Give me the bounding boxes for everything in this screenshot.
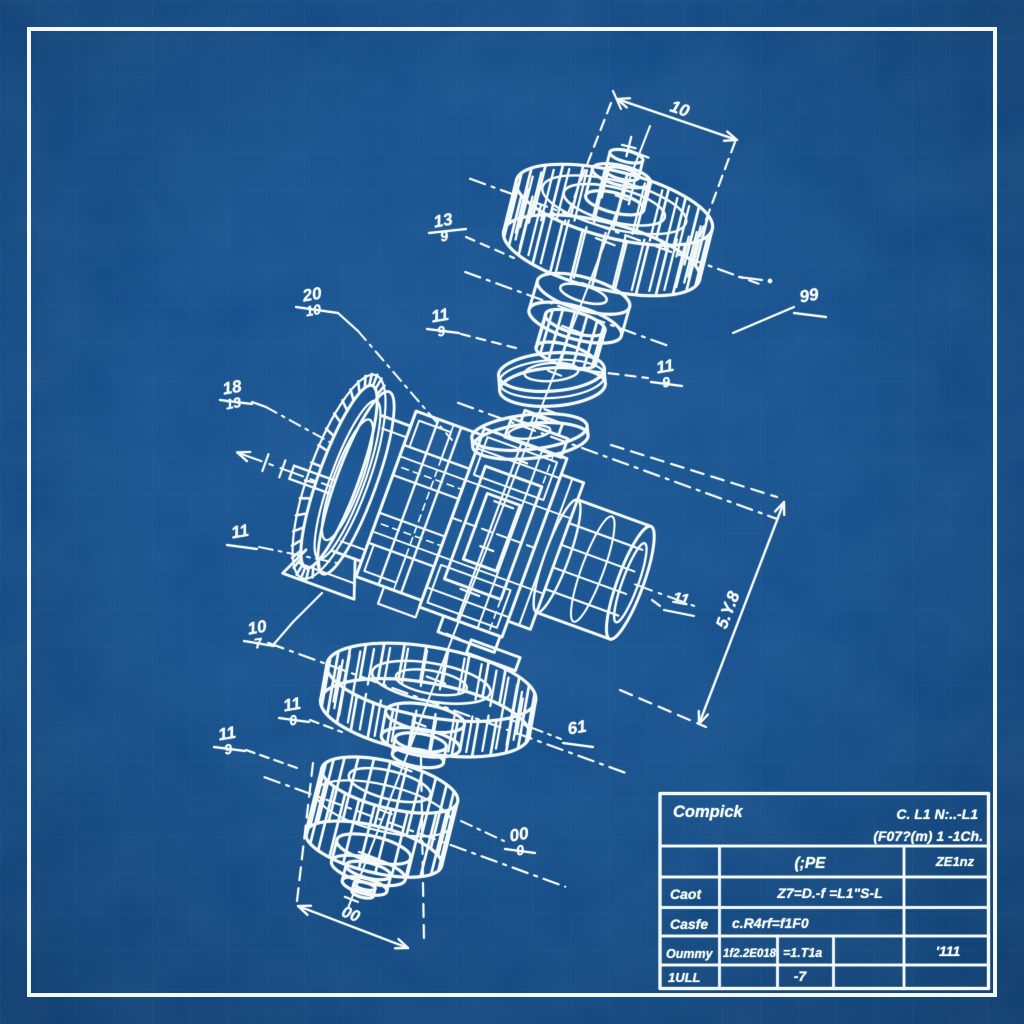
svg-text:Caot: Caot <box>670 886 702 902</box>
svg-text:11: 11 <box>230 521 251 543</box>
svg-text:-7: -7 <box>794 968 808 984</box>
svg-text:13: 13 <box>224 394 242 412</box>
svg-text:1f2.2E018: 1f2.2E018 <box>723 948 777 960</box>
svg-text:11: 11 <box>671 590 690 610</box>
svg-text:C. L1 N:..-L1: C. L1 N:..-L1 <box>896 806 978 822</box>
svg-text:61: 61 <box>566 717 588 739</box>
svg-text:(F07?(m) 1 -1Ch.: (F07?(m) 1 -1Ch. <box>873 828 983 844</box>
svg-text:=1.T1a: =1.T1a <box>783 946 822 960</box>
svg-text:10: 10 <box>304 301 322 319</box>
svg-text:ZE1nz: ZE1nz <box>935 854 975 869</box>
svg-text:99: 99 <box>798 284 820 306</box>
svg-text:c.R4rf=f1F0: c.R4rf=f1F0 <box>732 915 809 931</box>
svg-text:Z7=D.-f =L1"S-L: Z7=D.-f =L1"S-L <box>776 885 882 901</box>
svg-text:'111: '111 <box>936 943 961 959</box>
svg-text:Oummy: Oummy <box>666 947 714 961</box>
svg-text:Compick: Compick <box>673 803 744 821</box>
svg-text:Casfe: Casfe <box>670 916 708 932</box>
svg-text:1ULL: 1ULL <box>668 970 701 985</box>
svg-text:(;PE: (;PE <box>795 855 827 872</box>
